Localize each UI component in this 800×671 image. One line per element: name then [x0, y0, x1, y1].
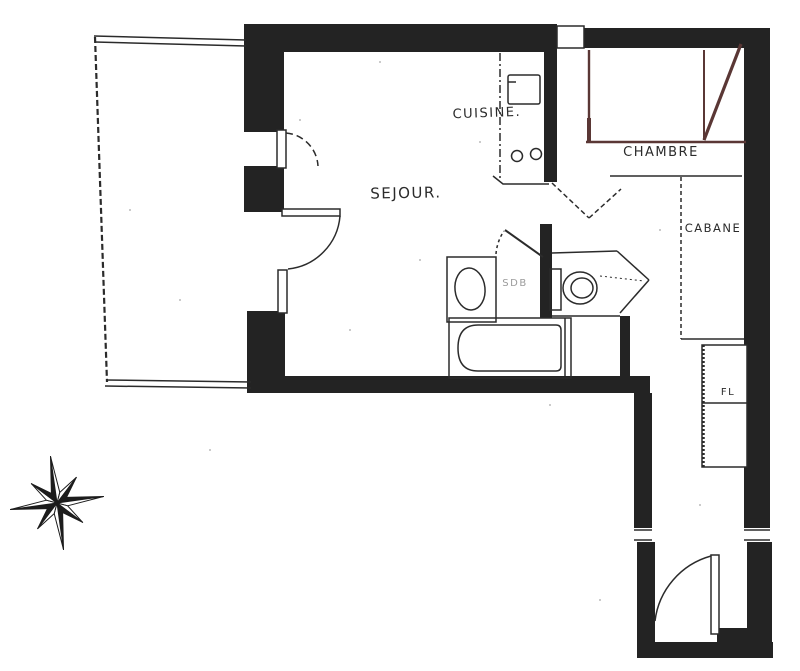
wall-bottom-entrance: [637, 642, 773, 658]
balcony-door-upper-leaf: [277, 130, 286, 168]
balcony-door-upper: [277, 130, 318, 168]
wall-left-upper: [244, 24, 284, 132]
corridor-wall-gaps: [634, 530, 770, 540]
cupboard-outline: [702, 345, 747, 467]
wall-left-lower: [247, 311, 285, 381]
wall-corridor-left-upper: [634, 393, 652, 528]
bathtub-basin: [458, 325, 561, 371]
wall-entrance-step: [717, 628, 750, 644]
kitchen-counter-edge: [493, 176, 549, 184]
balcony-edge-top-outer: [94, 36, 246, 40]
window-panel-lower: [278, 270, 287, 313]
floor-plan-page: CUISINE. CHAMBRE SEJOUR. CABANE SDB FL: [0, 0, 800, 671]
balcony-edge-left: [95, 37, 107, 382]
balcony: [94, 36, 251, 388]
kitchen-window: [557, 26, 584, 48]
french-door-swing-arc: [288, 216, 340, 269]
washbasin-bowl: [453, 267, 487, 312]
label-living-room: SEJOUR.: [370, 183, 442, 202]
wall-right-lower: [747, 542, 772, 644]
entrance-door-leaf: [711, 555, 719, 634]
label-cupboard: FL: [721, 387, 735, 398]
wall-kitchen-right: [544, 52, 557, 182]
balcony-edge-top-inner: [95, 42, 246, 46]
wall-wc-right-lower: [620, 316, 630, 378]
bedroom-door-leaf-diagonal: [704, 44, 741, 140]
label-cabin-closet: CABANE: [685, 221, 742, 235]
floor-plan-drawing: CUISINE. CHAMBRE SEJOUR. CABANE SDB FL: [0, 0, 800, 671]
wc-top-line: [552, 251, 617, 253]
hallway-partitions: [552, 176, 744, 339]
entrance-door-swing-arc: [655, 556, 711, 621]
ink-lines: [94, 26, 770, 634]
entrance-door: [655, 555, 719, 634]
label-kitchen: CUISINE.: [452, 105, 521, 122]
wall-left-mid: [244, 166, 284, 212]
wc-door-leaf-lower: [620, 280, 649, 313]
sejour-hall-opening-dash-2: [589, 189, 621, 218]
bathroom-door-swing-arc: [496, 231, 504, 254]
cupboard-column: [702, 345, 747, 467]
label-bathroom: SDB: [502, 278, 527, 289]
french-door-leaf: [282, 209, 340, 216]
wall-top-sejour: [244, 24, 557, 52]
wc-door-leaf-upper: [617, 251, 649, 280]
toilet-bowl-outer: [563, 272, 597, 304]
hob-burner-left: [512, 151, 523, 162]
balcony-edge-bottom-inner: [106, 380, 251, 382]
wc-door-swing-dash: [600, 276, 644, 281]
bedroom-pen-lines: [586, 44, 746, 142]
sejour-hall-opening-dash-1: [552, 183, 589, 218]
kitchen-sink: [508, 75, 540, 104]
balcony-edge-bottom-outer: [105, 386, 251, 388]
label-bedroom: CHAMBRE: [623, 145, 699, 160]
toilet-bowl-inner: [571, 278, 593, 298]
french-door-balcony: [278, 209, 340, 313]
hob-burner-right: [531, 149, 542, 160]
compass-rose-icon: [11, 457, 104, 550]
balcony-door-upper-swing-arc: [286, 133, 318, 166]
wall-right-upper: [744, 28, 770, 528]
wall-corridor-left-lower: [637, 542, 655, 646]
bathroom-door-leaf: [505, 230, 543, 257]
